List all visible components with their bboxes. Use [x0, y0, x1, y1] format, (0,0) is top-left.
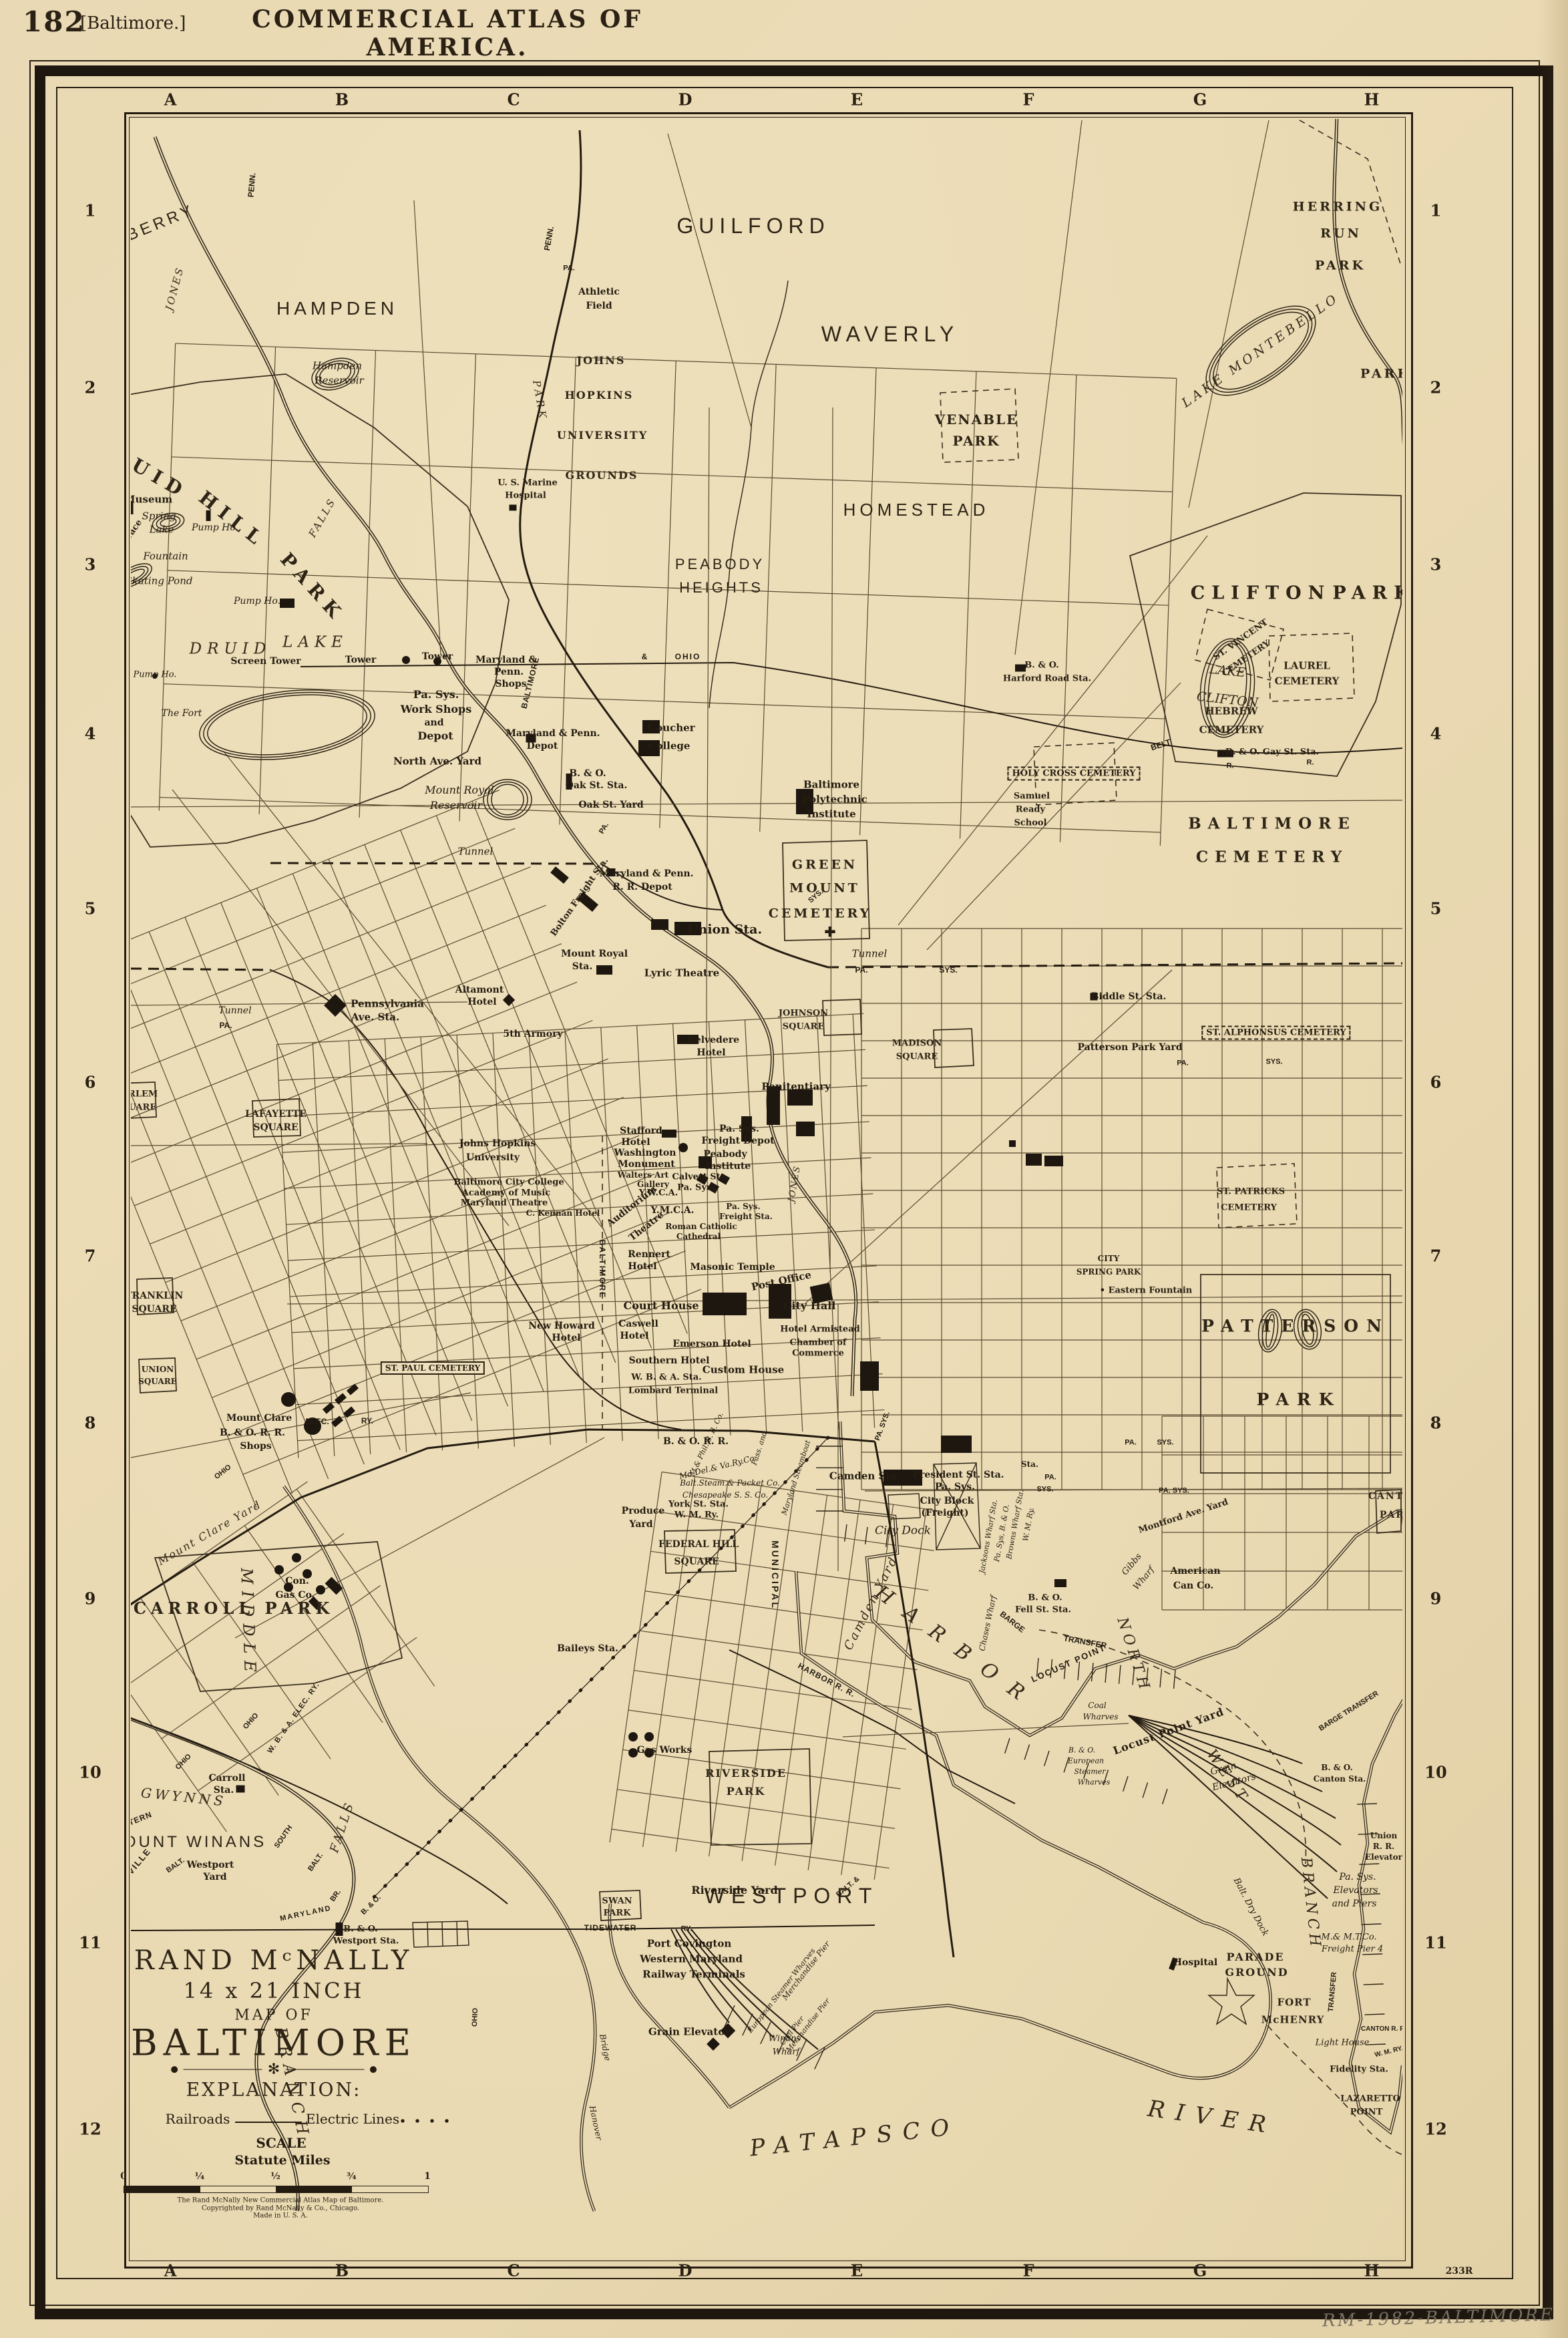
- map-label: University: [466, 1153, 520, 1162]
- map-label: OHIO: [675, 653, 701, 661]
- map-label: Pa. Sys.: [677, 1184, 715, 1192]
- map-label: PA.: [1125, 1440, 1137, 1447]
- map-label: BALTIMORE: [598, 1240, 606, 1299]
- map-label: LAKE MONTEBELLO: [1180, 291, 1342, 409]
- map-label: FALLS: [329, 1800, 357, 1854]
- map-label: Elevators: [1333, 1886, 1378, 1895]
- map-label: HEBREW: [1205, 707, 1257, 717]
- map-label: College: [648, 741, 691, 751]
- map-label: New Howard: [528, 1321, 594, 1331]
- map-label: Sta.: [214, 1786, 234, 1795]
- scale-bar-segment: [124, 2186, 200, 2192]
- map-label: Westport: [187, 1860, 234, 1870]
- ornament-flourish-icon: ✻: [268, 2061, 280, 2078]
- map-label: RIVER: [1147, 2098, 1278, 2138]
- map-label: MARYLAND: [279, 1904, 332, 1923]
- map-label: JOHNS: [577, 355, 626, 366]
- map-label: U. S. Marine: [498, 479, 558, 488]
- map-label: 5th Armory: [503, 1029, 562, 1039]
- map-label: H A R B O R: [871, 1582, 1032, 1707]
- map-label: Peabody: [703, 1150, 747, 1159]
- map-label: SQUARE: [783, 1023, 824, 1031]
- title-city: BALTIMORE: [131, 2022, 417, 2064]
- map-label: BALT.: [307, 1852, 325, 1872]
- map-label: B. & O.: [1028, 1594, 1062, 1603]
- map-label: FALLS: [307, 496, 338, 539]
- map-label: HOMESTEAD: [843, 501, 990, 518]
- map-label: W. M. RY.: [1374, 2045, 1404, 2059]
- map-label: Freight Sta.: [719, 1212, 773, 1220]
- map-label: Ave. Sta.: [351, 1013, 399, 1023]
- map-label: HILL: [196, 488, 270, 551]
- map-label: Theatre: [628, 1210, 666, 1243]
- map-label: Mount Clare: [226, 1413, 292, 1423]
- map-label: Pump Ho.: [234, 597, 280, 606]
- map-label: Merchandise Pier: [781, 1940, 831, 2001]
- map-label: R. R.: [1373, 1842, 1394, 1850]
- map-label: Mount Clare Yard: [156, 1499, 263, 1567]
- map-label: Field: [586, 301, 612, 311]
- map-label: Hotel: [620, 1331, 648, 1341]
- map-label: Depot: [527, 741, 558, 751]
- map-label: B. & O.: [1068, 1747, 1095, 1754]
- map-label: Pump Ho.: [134, 671, 177, 679]
- map-label: PA.: [598, 822, 610, 836]
- map-label: Union Sta.: [687, 924, 762, 937]
- map-label: Patterson Park Yard: [1077, 1043, 1182, 1052]
- map-label: RUN: [1320, 228, 1362, 240]
- map-label: SYS.: [1036, 1486, 1053, 1494]
- map-label: PA.: [855, 966, 867, 974]
- map-label: HOPKINS: [565, 390, 634, 401]
- map-label: Gas Works: [637, 1745, 693, 1755]
- map-label: MIDDLE: [238, 1568, 258, 1679]
- map-label: Montford Ave. Yard: [1137, 1498, 1229, 1535]
- map-label: CITY: [1098, 1255, 1120, 1263]
- map-label: SYS.: [939, 966, 957, 974]
- map-label: European: [1068, 1758, 1104, 1765]
- map-label: Post Office: [751, 1270, 812, 1293]
- map-label: PARK: [277, 550, 349, 626]
- map-label: Yard: [629, 1520, 652, 1529]
- map-label: CEMETERY: [1221, 1204, 1277, 1212]
- map-label: ST. PATRICKS: [1217, 1188, 1285, 1196]
- map-label: PATAPSCO: [749, 2116, 961, 2160]
- map-label: Cathedral: [676, 1232, 721, 1240]
- map-label: Goucher: [647, 723, 695, 733]
- scale-tick: 0: [120, 2171, 127, 2182]
- map-label: Oak St. Yard: [578, 800, 643, 810]
- map-label: Institute: [705, 1162, 751, 1171]
- map-label: Hotel: [467, 997, 496, 1007]
- map-label: Depot: [417, 731, 453, 741]
- map-label: BARGE TRANSFER: [1318, 1690, 1380, 1733]
- explanation-heading: EXPLANATION:: [186, 2079, 362, 2101]
- map-label: Jacksons Wharf Sta.: [978, 1499, 998, 1574]
- map-label: NORTH: [1114, 1616, 1152, 1695]
- map-label: JOHNSON: [779, 1009, 828, 1018]
- map-label: W. M. Ry.: [674, 1511, 719, 1520]
- map-label: SOUTH: [273, 1824, 294, 1850]
- map-label: North Ave. Yard: [393, 757, 481, 767]
- map-label: Emerson Hotel: [672, 1339, 751, 1349]
- map-label: Coal: [1088, 1701, 1106, 1709]
- map-label: UNIVERSITY: [557, 430, 648, 441]
- map-label: M.& M.T.Co.: [1321, 1933, 1376, 1942]
- map-label: Freight Depot: [701, 1136, 774, 1146]
- map-label: PEABODY: [675, 557, 765, 572]
- map-label: Maryland & Penn.: [506, 729, 600, 738]
- map-label: ST. ALPHONSUS CEMETERY: [1201, 1026, 1350, 1040]
- map-label: Light House: [1316, 2039, 1370, 2047]
- map-label: Shops: [495, 679, 526, 689]
- map-label: Reservoir: [315, 376, 363, 386]
- map-label: W. M. Ry.: [1022, 1507, 1035, 1542]
- map-label: HEIGHTS: [679, 580, 763, 595]
- map-label: Wharves: [1083, 1713, 1119, 1721]
- map-label: &: [642, 653, 648, 661]
- map-label: Tower: [422, 652, 453, 661]
- map-label: MUNICIPAL: [771, 1540, 780, 1610]
- map-label: Hotel: [697, 1048, 725, 1057]
- map-label: Balt.Steam.& Packet Co.: [680, 1479, 780, 1487]
- map-label: York St. Sta.: [668, 1500, 729, 1509]
- map-label: HERRING: [1293, 201, 1383, 214]
- map-label: Tower: [345, 655, 376, 665]
- map-label: City Hall: [783, 1301, 836, 1311]
- map-label: Rennert: [628, 1250, 670, 1259]
- map-label: RIVERSIDE: [705, 1768, 787, 1779]
- map-label: R. R. Depot: [612, 882, 672, 892]
- map-label: Chesapeake S. S. Co.: [682, 1491, 768, 1499]
- map-label: Hampden: [313, 361, 362, 371]
- map-label: Reservoir: [430, 800, 482, 811]
- map-label: American: [1170, 1566, 1220, 1576]
- map-label: HAMPDEN: [276, 299, 398, 318]
- map-label: CEMETERY: [769, 908, 872, 921]
- map-label: Walters Art: [618, 1171, 668, 1179]
- map-label: BELT: [1150, 738, 1172, 752]
- map-label: City Dock: [875, 1526, 931, 1537]
- map-label: PA. SYS.: [874, 1411, 892, 1442]
- map-label: Hanover: [588, 2105, 604, 2141]
- map-label: PARK: [603, 1909, 630, 1918]
- map-label: Tunnel: [852, 949, 888, 959]
- map-label: SYS.: [1157, 1440, 1173, 1447]
- map-label: RY.: [361, 1417, 373, 1425]
- map-label: Lake: [150, 525, 174, 535]
- map-label: Can Co.: [1173, 1581, 1213, 1591]
- map-label: Skating Pond: [126, 576, 193, 587]
- legend-railroads-label: Railroads: [166, 2111, 230, 2127]
- legend-railroad-line-sample: [235, 2122, 302, 2123]
- map-label: DRUID: [190, 642, 272, 657]
- map-label: POINT: [1350, 2108, 1383, 2117]
- map-label: Stafford: [620, 1126, 662, 1136]
- map-label: Sta.: [572, 962, 593, 971]
- map-label: Fidelity Sta.: [1330, 2065, 1388, 2074]
- map-label: FRANKLIN: [126, 1291, 184, 1301]
- map-label: GREEN: [792, 859, 857, 872]
- map-label: Hotel: [621, 1138, 650, 1147]
- map-label: Carroll: [209, 1774, 246, 1783]
- map-label: PA.: [219, 1021, 232, 1029]
- map-label: Pa. Sys.: [935, 1482, 975, 1492]
- scale-tick: 1: [424, 2171, 431, 2182]
- map-label: Elevator: [1365, 1853, 1402, 1861]
- map-label: Grain Elevator: [648, 2027, 730, 2037]
- map-label: PA. SYS.: [1159, 1488, 1189, 1495]
- map-label: Union: [1370, 1832, 1397, 1840]
- map-label: FEDERAL HILL: [658, 1540, 739, 1549]
- map-label: Pennsylvania: [351, 999, 424, 1009]
- map-label: GROUNDS: [566, 470, 638, 481]
- plate-code: 233R: [1446, 2266, 1473, 2277]
- map-label: Westport Sta.: [333, 1937, 399, 1946]
- map-label: Maryland Theatre: [461, 1199, 548, 1208]
- map-label: Museum: [124, 495, 172, 505]
- map-label: Johns Hopkins: [459, 1139, 536, 1148]
- map-label: Penn.: [494, 667, 524, 677]
- map-label: CEMETERY: [1275, 677, 1340, 687]
- map-label: PA.: [1177, 1060, 1189, 1067]
- map-label: Custom House: [703, 1365, 784, 1375]
- scale-units: Statute Miles: [234, 2153, 330, 2168]
- map-label: JONES: [164, 265, 186, 311]
- map-label: PENN.: [246, 172, 256, 198]
- map-label: • Eastern Fountain: [1100, 1287, 1193, 1295]
- map-label: R.: [1307, 760, 1314, 767]
- map-label: TRANSFER: [1328, 1972, 1338, 2013]
- map-label: SWAN: [602, 1897, 632, 1906]
- map-label: Wharves: [1078, 1779, 1111, 1786]
- map-label: MOUNT WINANS: [108, 1834, 266, 1850]
- map-label: PATTERSON: [1201, 1318, 1390, 1335]
- map-label: Harford Road Sta.: [1003, 675, 1091, 683]
- map-label: Sta.: [1021, 1460, 1038, 1468]
- map-label: WAVERLY: [821, 323, 960, 345]
- scale-tick: ¾: [347, 2171, 357, 2182]
- scale-bar-segment: [276, 2186, 352, 2192]
- map-label: LAUREL: [1284, 661, 1330, 671]
- map-label: Pump Ho.: [192, 523, 238, 532]
- map-label: Maryland & Penn.: [599, 869, 693, 878]
- map-label: B. & O.: [360, 1894, 383, 1916]
- map-label: RY.: [681, 1926, 693, 1933]
- map-label: Canton Sta.: [1314, 1775, 1366, 1783]
- map-label: W. B. & A. Sta.: [631, 1373, 701, 1382]
- scale-tick: ½: [270, 2171, 280, 2182]
- map-label: The Fort: [162, 709, 202, 718]
- map-label: B. & O. R. R.: [663, 1437, 729, 1446]
- map-label: Baltimore City College: [453, 1178, 564, 1187]
- legend-electric-line-sample: [395, 2119, 449, 2123]
- map-label: PARK: [1315, 260, 1366, 273]
- map-label: VENABLE: [935, 413, 1018, 426]
- atlas-page: 182 [Baltimore.] COMMERCIAL ATLAS OF AME…: [0, 0, 1568, 2338]
- map-label: OHIO: [174, 1753, 193, 1772]
- map-label: Spring: [142, 512, 176, 522]
- map-label: (Freight): [922, 1508, 969, 1518]
- map-label: B. & O. Gay St. Sta.: [1225, 748, 1319, 757]
- map-label: OHIO: [471, 2008, 479, 2027]
- map-label: Tunnel: [458, 847, 494, 857]
- scale-heading: SCALE: [256, 2135, 306, 2151]
- map-label: Athletic: [578, 287, 620, 297]
- map-label: C. Kennan Hotel: [526, 1209, 600, 1217]
- map-label: Mount Royal: [561, 949, 628, 959]
- map-label: Penitentiary: [761, 1082, 830, 1092]
- map-label: PARK: [1257, 1391, 1342, 1408]
- map-label: GUILFORD: [676, 215, 829, 236]
- map-label: UNION: [142, 1365, 174, 1373]
- map-label: Biddle St. Sta.: [1091, 992, 1167, 1001]
- map-label: Bolton Freight Sta.: [550, 856, 610, 938]
- map-label: ✚: [825, 925, 836, 939]
- map-label: BALTIMORE: [1188, 816, 1356, 832]
- map-label: Chamber of: [790, 1339, 847, 1347]
- map-label: Bridge: [598, 2033, 612, 2061]
- map-label: Calvert Sta.: [672, 1173, 729, 1182]
- map-label: Court House: [623, 1301, 699, 1311]
- map-label: Railway Terminals: [642, 1970, 745, 1980]
- map-label: Fountain: [143, 552, 188, 562]
- map-label: Camden Sta.: [829, 1472, 900, 1482]
- map-label: Ready: [1016, 806, 1045, 814]
- map-label: PA.: [1044, 1474, 1056, 1482]
- map-label: SYS.: [1265, 1059, 1282, 1066]
- copyright-line2: Copyrighted by Rand McNally & Co., Chica…: [202, 2205, 359, 2212]
- map-label: BR.: [329, 1888, 343, 1903]
- map-label: Institute: [807, 810, 855, 820]
- map-label: Steamer: [1074, 1768, 1105, 1776]
- map-label: CEMETERY: [1199, 725, 1264, 735]
- map-label: Tunnel: [218, 1006, 251, 1015]
- map-label: Lombard Terminal: [628, 1387, 718, 1395]
- map-label: LAZARETTO: [1340, 2095, 1400, 2104]
- map-label: Hospital: [505, 492, 546, 500]
- map-label: PARK: [727, 1786, 765, 1797]
- legend-electric-label: Electric Lines: [306, 2111, 399, 2127]
- map-label: Maryland Steamboat: [781, 1440, 812, 1516]
- map-label: ELEC.: [305, 1417, 329, 1426]
- map-label: LAFAYETTE: [245, 1110, 307, 1119]
- title-size: 14 x 21 INCH: [183, 1978, 364, 2003]
- map-label: Port Covington: [647, 1939, 732, 1949]
- map-label: Hospital: [1173, 1958, 1217, 1967]
- map-label: Altamont: [455, 985, 504, 995]
- map-label: President St. Sta.: [912, 1470, 1004, 1480]
- map-label: FORT: [1277, 1998, 1311, 2008]
- copyright-line1: The Rand McNally New Commercial Atlas Ma…: [178, 2197, 384, 2204]
- map-label: Shops: [240, 1442, 271, 1451]
- map-label: Caswell: [618, 1319, 658, 1329]
- map-label: PARK: [531, 379, 548, 422]
- map-label: School: [1014, 819, 1046, 828]
- map-label: Chases Wharf: [978, 1595, 997, 1651]
- map-label: B. & O.: [343, 1925, 377, 1934]
- map-label: B. & O.: [1024, 661, 1058, 670]
- title-publisher: RAND MᶜNALLY: [134, 1945, 413, 1976]
- map-label: Balt. Dry Dock: [1232, 1876, 1270, 1937]
- map-label: Screen Tower: [230, 657, 301, 666]
- map-label: Polytechnic: [802, 795, 867, 805]
- map-label: Western Maryland: [640, 1955, 743, 1965]
- map-label: Riverside Yard: [691, 1885, 777, 1896]
- map-label: Browns Wharf Sta.: [1005, 1489, 1024, 1560]
- map-label: OHIO: [242, 1712, 260, 1731]
- map-label: GROUND: [1225, 1967, 1288, 1978]
- title-ornament: ●✻●: [170, 2061, 377, 2078]
- map-label: B. & O.: [569, 769, 606, 778]
- map-label: Locust Point Yard: [1112, 1706, 1225, 1756]
- map-label: PARK: [952, 434, 1000, 448]
- map-label: SQUARE: [132, 1305, 176, 1314]
- map-label: B. & O. R. R.: [220, 1428, 285, 1438]
- map-label: Gibbs: [1121, 1552, 1143, 1576]
- map-label: SQUARE: [253, 1123, 298, 1132]
- map-label: MOUNT: [789, 882, 860, 895]
- scale-tick: ¼: [194, 2171, 204, 2182]
- map-label: Con.: [285, 1576, 309, 1586]
- copyright-line3: Made in U. S. A.: [253, 2212, 308, 2220]
- map-label: Hotel: [628, 1262, 656, 1271]
- map-label: Pa. Sys.: [719, 1124, 759, 1134]
- map-label: Academy of Music: [462, 1189, 550, 1198]
- map-label: Pass. and: [751, 1430, 769, 1466]
- map-label: Pa. Sys.: [726, 1202, 760, 1210]
- scale-bar: [124, 2186, 429, 2193]
- map-label: BRANCH: [1298, 1856, 1323, 1951]
- map-label: Hotel: [552, 1333, 580, 1343]
- map-label: Produce: [622, 1506, 665, 1516]
- map-label: Mount Royal: [425, 785, 494, 796]
- map-label: Hotel Armistead: [780, 1325, 859, 1334]
- map-label: Belvedere: [687, 1035, 739, 1045]
- map-label: McHENRY: [1261, 2015, 1325, 2025]
- map-label: Maryland &: [475, 655, 537, 665]
- map-label: B. & O.: [1321, 1764, 1352, 1772]
- map-label: LAKE: [282, 635, 348, 651]
- map-label: PENN.: [543, 226, 555, 251]
- map-label: JONES: [787, 1164, 802, 1202]
- map-label: SPRING PARK: [1076, 1268, 1141, 1276]
- map-label: Yard: [203, 1872, 226, 1882]
- map-label: Gas Co.: [276, 1591, 315, 1600]
- map-label: BALT.: [165, 1857, 186, 1874]
- map-label: Freight Pier 4: [1322, 1945, 1383, 1954]
- map-label: CANTON R. R.: [1361, 2026, 1406, 2033]
- map-label: Monument: [618, 1160, 675, 1169]
- map-label: Washington: [614, 1148, 676, 1158]
- map-label: Pa. Sys.: [1339, 1872, 1376, 1882]
- map-label: Commerce: [792, 1349, 844, 1358]
- map-label: and: [424, 718, 443, 727]
- map-label: CARROLL PARK: [134, 1601, 334, 1617]
- map-label: SQUARE: [138, 1377, 177, 1385]
- map-label: SQUARE: [674, 1557, 719, 1566]
- map-label: W. B. & A. ELEC. RY.: [266, 1681, 321, 1755]
- map-label: Baileys Sta.: [557, 1644, 618, 1653]
- map-label: Roman Catholic: [665, 1222, 737, 1230]
- map-label: Southern Hotel: [629, 1356, 710, 1365]
- map-label: Work Shops: [401, 704, 471, 715]
- map-label: OHIO: [214, 1464, 233, 1481]
- map-label: Wharf: [1132, 1565, 1156, 1591]
- map-label: Oak St. Sta.: [566, 781, 628, 790]
- map-label: City Block: [920, 1496, 974, 1506]
- map-label: TIDEWATER: [584, 1924, 637, 1932]
